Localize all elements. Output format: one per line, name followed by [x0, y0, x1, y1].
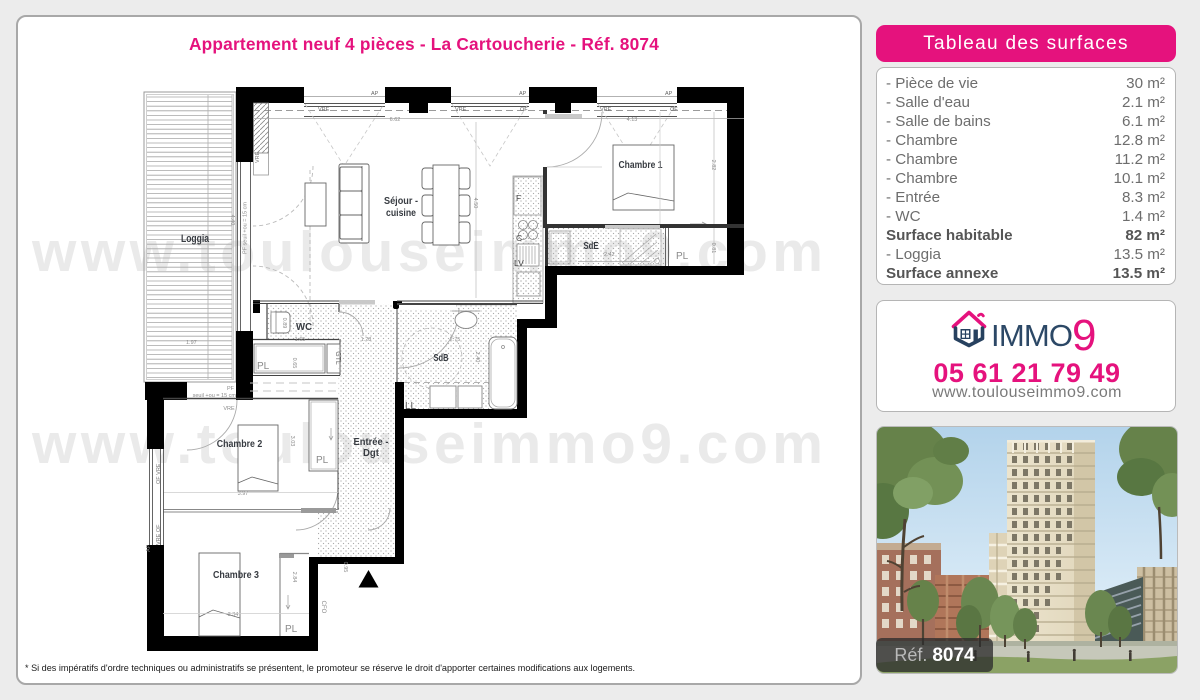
svg-text:seuil +ou = 15 cm: seuil +ou = 15 cm [193, 393, 237, 399]
svg-text:PF: PF [227, 386, 235, 392]
svg-text:PL: PL [285, 624, 298, 635]
svg-text:AP: AP [665, 91, 673, 97]
svg-text:SdE: SdE [584, 241, 599, 252]
svg-text:AP: AP [371, 91, 379, 97]
svg-text:PF seuil +ou = 15 cm: PF seuil +ou = 15 cm [243, 202, 249, 254]
svg-text:PL: PL [676, 251, 689, 262]
svg-text:CFO: CFO [320, 601, 326, 614]
svg-text:VRE: VRE [223, 406, 235, 412]
svg-text:0.95: 0.95 [342, 562, 348, 573]
svg-text:4.40: 4.40 [229, 215, 235, 226]
svg-text:Entrée -: Entrée - [354, 437, 390, 448]
svg-text:SdB: SdB [434, 353, 449, 364]
svg-text:Dgt: Dgt [363, 448, 380, 459]
svg-text:PL: PL [257, 361, 270, 372]
svg-text:Chambre 1: Chambre 1 [619, 160, 663, 171]
svg-text:VRE OF: VRE OF [156, 524, 162, 545]
svg-text:2.40: 2.40 [474, 352, 480, 363]
svg-text:OF VRE: OF VRE [156, 463, 162, 484]
svg-text:1.97: 1.97 [186, 340, 197, 346]
svg-text:VRE: VRE [318, 107, 330, 113]
svg-text:AP: AP [519, 91, 527, 97]
svg-text:3.97: 3.97 [238, 491, 249, 497]
svg-text:LL: LL [405, 401, 417, 412]
svg-text:0.89: 0.89 [281, 318, 287, 329]
svg-text:9: 9 [1072, 311, 1096, 357]
svg-text:2.42: 2.42 [604, 252, 615, 258]
svg-text:C: C [516, 233, 522, 243]
svg-text:AP: AP [146, 544, 152, 552]
svg-text:4.50: 4.50 [472, 198, 478, 209]
svg-text:1.65: 1.65 [295, 337, 306, 343]
svg-text:3.34: 3.34 [228, 612, 239, 618]
svg-text:VRE: VRE [455, 107, 467, 113]
svg-text:LV: LV [514, 258, 524, 268]
svg-text:OF: OF [670, 107, 678, 113]
svg-text:2.82: 2.82 [710, 160, 716, 171]
svg-text:Chambre 2: Chambre 2 [217, 439, 263, 450]
svg-text:Loggia: Loggia [181, 233, 209, 245]
svg-text:PL: PL [316, 455, 329, 466]
svg-text:cuisine: cuisine [386, 208, 416, 219]
svg-text:2.84: 2.84 [291, 572, 297, 583]
svg-text:4.13: 4.13 [627, 117, 638, 123]
svg-text:F: F [516, 193, 521, 203]
svg-text:0.65: 0.65 [291, 358, 297, 369]
svg-text:IMMO: IMMO [991, 318, 1072, 353]
svg-text:WC: WC [296, 322, 313, 333]
svg-text:6.62: 6.62 [390, 117, 401, 123]
svg-text:0.81: 0.81 [710, 243, 716, 254]
svg-text:OF: OF [520, 107, 528, 113]
svg-text:3.03: 3.03 [289, 436, 295, 447]
svg-text:Chambre 3: Chambre 3 [213, 570, 259, 581]
svg-text:Séjour -: Séjour - [384, 196, 418, 207]
